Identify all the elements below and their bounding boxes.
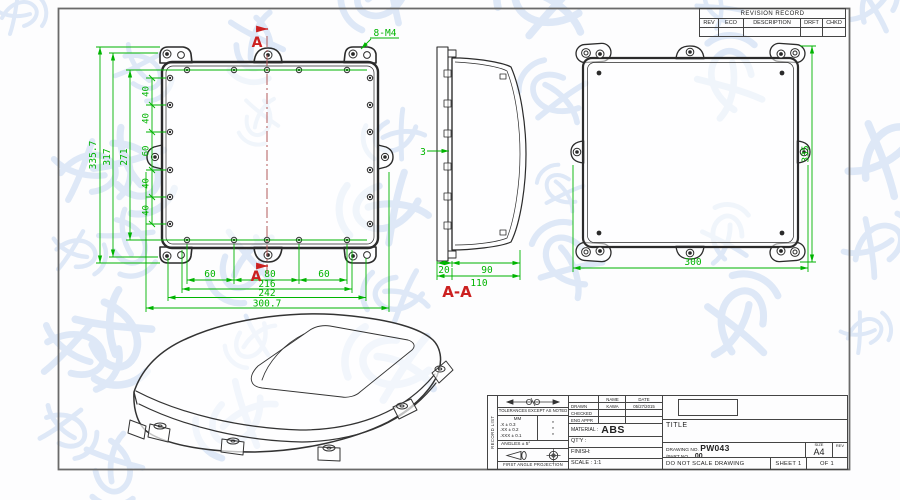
- approval-row-engappr: ENG APPR: [569, 417, 662, 424]
- svg-text:271: 271: [119, 148, 130, 165]
- revision-empty-row: [700, 27, 845, 36]
- svg-text:40: 40: [142, 178, 152, 189]
- revision-table-title: REVISION RECORD: [700, 9, 845, 18]
- material-value: ABS: [601, 425, 625, 436]
- svg-text:242: 242: [258, 288, 275, 299]
- svg-text:60: 60: [204, 269, 216, 280]
- section-view: 20 90 110 3 A-A: [420, 47, 526, 301]
- tolerance-table: MM .X ± 0.3 .XX ± 0.2 .XXX ± 0.1 * * *: [498, 416, 568, 441]
- col-description: DESCRIPTION: [743, 19, 800, 27]
- projection-target-icon: [546, 448, 561, 463]
- title-area: TITLE DRAWING NO. PW043 /PART NO. 00 SIZ…: [663, 396, 847, 469]
- approval-row-drawn: DRAWN KAWA 05/27/2015: [569, 403, 662, 410]
- finish-row: FINISH:: [569, 448, 662, 459]
- approval-block: NAME DATE DRAWN KAWA 05/27/2015 CHECKED …: [569, 396, 663, 469]
- approval-header-row: NAME DATE: [569, 396, 662, 403]
- svg-text:40: 40: [142, 86, 152, 97]
- svg-text:317: 317: [102, 148, 113, 165]
- front-view: 335.7 317 271 40 40 60 40 40 60 80 60 21…: [88, 28, 399, 312]
- svg-text:90: 90: [481, 265, 493, 276]
- approval-row-checked: CHECKED: [569, 410, 662, 417]
- wall-thickness-label: 3: [420, 147, 426, 158]
- sheet-of: OF 1: [807, 458, 847, 469]
- svg-text:60: 60: [318, 269, 330, 280]
- qty-row: QT'Y :: [569, 437, 662, 448]
- title-label: TITLE: [663, 419, 847, 442]
- svg-text:335.7: 335.7: [88, 141, 99, 170]
- col-rev: REV: [700, 19, 718, 27]
- title-block-side-strip: RECORD LIST: [488, 396, 498, 469]
- projection-cone-icon: [505, 450, 531, 461]
- side-strip-label: RECORD LIST: [491, 411, 496, 453]
- drawing-number-cell: DRAWING NO. PW043 /PART NO. 00: [663, 443, 806, 457]
- section-view-title: A-A: [442, 283, 472, 301]
- projection-symbols: [498, 449, 568, 462]
- dimension-symbol-icon: [498, 396, 568, 408]
- tolerance-block: TOLERANCES EXCEPT AS NOTED MM .X ± 0.3 .…: [498, 396, 569, 469]
- col-drft: DRFT: [800, 19, 822, 27]
- back-view: 335 300: [571, 43, 816, 272]
- thread-callout: 8-M4: [374, 28, 397, 39]
- do-not-scale-note: DO NOT SCALE DRAWING: [663, 458, 771, 469]
- isometric-view: [128, 314, 453, 461]
- svg-text:300.7: 300.7: [253, 299, 282, 310]
- rev-cell: REV: [833, 443, 847, 457]
- svg-text:20: 20: [438, 265, 450, 276]
- svg-text:300: 300: [684, 257, 701, 268]
- svg-text:40: 40: [142, 205, 152, 216]
- revision-table-header: REV ECO DESCRIPTION DRFT CHKD: [700, 18, 845, 27]
- projection-label: FIRST ANGLE PROJECTION: [498, 462, 568, 469]
- drawing-number-value: PW043: [700, 443, 729, 453]
- svg-text:335: 335: [801, 145, 812, 162]
- tolerance-heading: TOLERANCES EXCEPT AS NOTED: [498, 408, 568, 416]
- revision-record-table: REVISION RECORD REV ECO DESCRIPTION DRFT…: [699, 8, 846, 37]
- col-eco: ECO: [718, 19, 743, 27]
- size-cell: SIZE A4: [806, 443, 833, 457]
- sheet-number: SHEET 1: [771, 458, 807, 469]
- material-row: MATERIAL : ABS: [569, 424, 662, 437]
- svg-text:110: 110: [470, 278, 487, 289]
- svg-text:A: A: [251, 269, 262, 285]
- logo-placeholder-box: [678, 399, 738, 416]
- sheet-size-value: A4: [806, 448, 832, 457]
- svg-text:A: A: [252, 35, 263, 51]
- svg-text:60: 60: [142, 146, 152, 157]
- svg-text:40: 40: [142, 113, 152, 124]
- title-block: RECORD LIST TOLERANCES EXCEPT AS NOTED M…: [487, 395, 848, 470]
- drawing-sheet: 335.7 317 271 40 40 60 40 40 60 80 60 21…: [0, 0, 900, 500]
- col-chkd: CHKD: [822, 19, 845, 27]
- tolerance-row: .XXX ± 0.1: [500, 434, 535, 439]
- scale-row: SCALE : 1:1: [569, 459, 662, 470]
